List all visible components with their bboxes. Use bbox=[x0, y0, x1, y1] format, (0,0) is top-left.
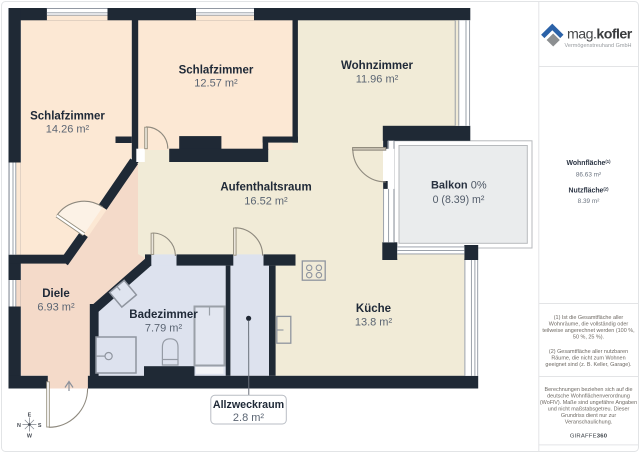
svg-text:(1) Ist die Gesamtfläche aller: (1) Ist die Gesamtfläche aller bbox=[554, 315, 624, 321]
svg-text:und nicht maßstabsgetreu. Dies: und nicht maßstabsgetreu. Dieser bbox=[548, 407, 630, 413]
svg-text:N: N bbox=[17, 423, 21, 429]
svg-text:14.26 m²: 14.26 m² bbox=[46, 124, 90, 136]
svg-text:Küche: Küche bbox=[356, 303, 391, 315]
svg-text:Räume, die nicht zum Wohnen: Räume, die nicht zum Wohnen bbox=[551, 356, 625, 362]
svg-text:13.8 m²: 13.8 m² bbox=[355, 317, 393, 329]
svg-text:Wohnräume, die vollständig ode: Wohnräume, die vollständig oder bbox=[549, 321, 629, 327]
svg-text:Vermögenstreuhand GmbH: Vermögenstreuhand GmbH bbox=[565, 43, 632, 49]
svg-text:Aufenthaltsraum: Aufenthaltsraum bbox=[220, 182, 311, 194]
svg-text:GIRAFFE360: GIRAFFE360 bbox=[570, 433, 608, 439]
svg-text:12.57 m²: 12.57 m² bbox=[194, 78, 238, 90]
svg-text:W: W bbox=[27, 434, 33, 440]
svg-text:Balkon 0%: Balkon 0% bbox=[431, 180, 487, 192]
svg-text:geeignet sind (z. B. Keller, G: geeignet sind (z. B. Keller, Garage). bbox=[545, 362, 632, 368]
svg-text:Allzweckraum: Allzweckraum bbox=[213, 399, 284, 411]
svg-text:Badezimmer: Badezimmer bbox=[129, 309, 198, 321]
svg-text:0 (8.39) m²: 0 (8.39) m² bbox=[433, 194, 485, 206]
svg-text:50 %, 25 %).: 50 %, 25 %). bbox=[573, 334, 605, 340]
svg-text:Grundriss dient nur zur: Grundriss dient nur zur bbox=[561, 413, 616, 419]
svg-text:Wohnzimmer: Wohnzimmer bbox=[341, 60, 414, 72]
svg-text:S: S bbox=[38, 423, 42, 429]
svg-text:teilweise angerechnet werden (: teilweise angerechnet werden (100 %, bbox=[542, 328, 635, 334]
svg-text:Diele: Diele bbox=[42, 288, 70, 300]
svg-text:6.93 m²: 6.93 m² bbox=[37, 302, 75, 314]
svg-text:Schlafzimmer: Schlafzimmer bbox=[30, 111, 105, 123]
svg-text:Schlafzimmer: Schlafzimmer bbox=[179, 65, 254, 77]
svg-text:(WoFlV). Maße sind ungefähre A: (WoFlV). Maße sind ungefähre Angaben bbox=[540, 400, 637, 406]
svg-text:E: E bbox=[28, 413, 32, 419]
svg-text:Nutzfläche(2): Nutzfläche(2) bbox=[569, 187, 610, 195]
svg-text:deutsche Wohnflächenverordnung: deutsche Wohnflächenverordnung bbox=[547, 394, 630, 400]
svg-text:16.52 m²: 16.52 m² bbox=[244, 196, 288, 208]
svg-text:Veranschaulichung.: Veranschaulichung. bbox=[565, 420, 613, 426]
svg-text:Wohnfläche(1): Wohnfläche(1) bbox=[566, 159, 611, 167]
svg-text:(2) Gesamtfläche aller nutzbar: (2) Gesamtfläche aller nutzbaren bbox=[549, 349, 628, 355]
svg-text:86.63 m²: 86.63 m² bbox=[576, 171, 601, 178]
svg-text:2.8 m²: 2.8 m² bbox=[233, 412, 265, 424]
svg-text:mag.kofler: mag.kofler bbox=[567, 26, 633, 42]
svg-text:Berechnungen beziehen sich auf: Berechnungen beziehen sich auf die bbox=[545, 387, 633, 393]
svg-text:7.79 m²: 7.79 m² bbox=[145, 323, 183, 335]
svg-text:11.96 m²: 11.96 m² bbox=[356, 74, 399, 86]
svg-text:8.39 m²: 8.39 m² bbox=[578, 198, 600, 205]
